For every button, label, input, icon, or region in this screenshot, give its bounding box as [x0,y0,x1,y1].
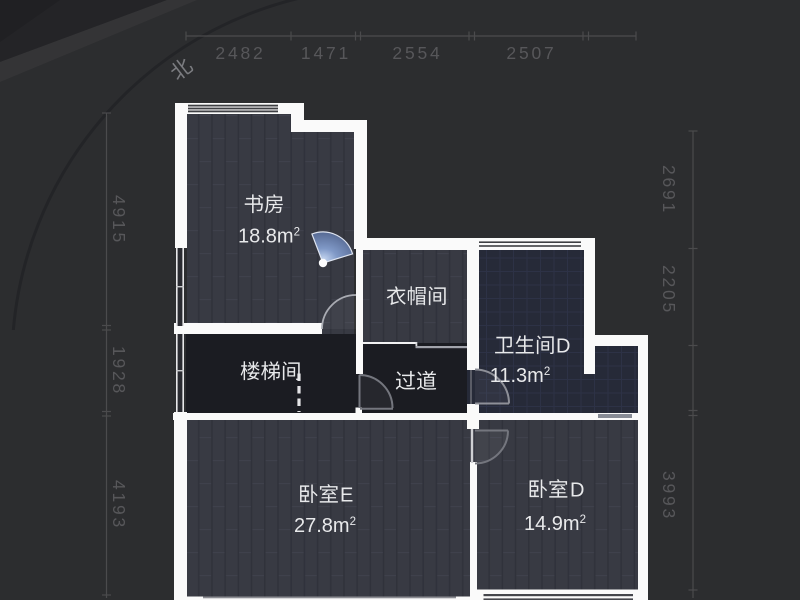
svg-text:1471: 1471 [301,43,351,63]
svg-text:11.3m2: 11.3m2 [490,365,551,387]
svg-text:27.8m2: 27.8m2 [294,515,356,537]
svg-text:1928: 1928 [109,346,129,396]
svg-text:D: D [570,480,584,502]
svg-text:14.9m2: 14.9m2 [524,513,586,535]
svg-text:D: D [556,336,570,358]
svg-text:2691: 2691 [659,165,679,215]
svg-text:2482: 2482 [215,43,265,63]
svg-text:E: E [340,485,353,507]
svg-text:2205: 2205 [659,265,679,315]
svg-text:2554: 2554 [392,43,442,63]
svg-text:3993: 3993 [659,471,679,521]
svg-text:18.8m2: 18.8m2 [238,226,300,248]
svg-text:2507: 2507 [506,43,556,63]
svg-text:4193: 4193 [109,480,129,530]
svg-text:4915: 4915 [109,195,129,245]
